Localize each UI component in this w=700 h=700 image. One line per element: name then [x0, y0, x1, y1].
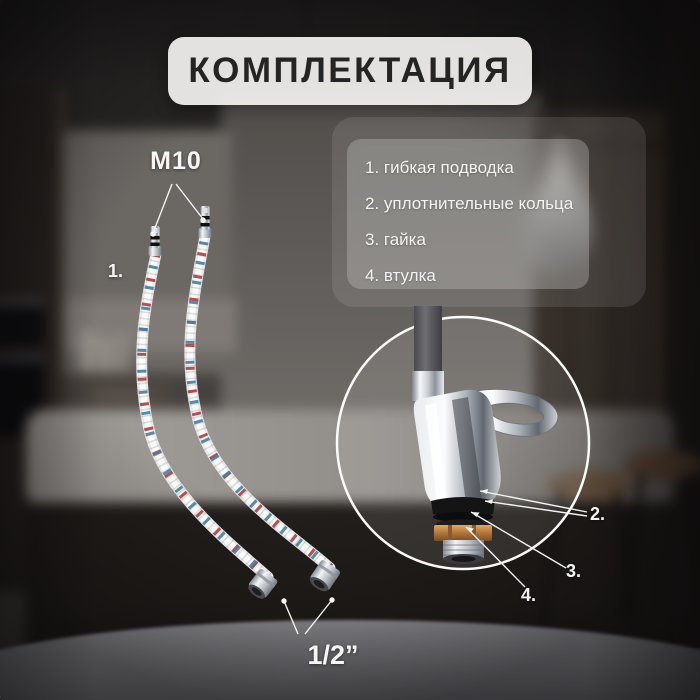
o-ring — [201, 223, 210, 227]
illustration-overlay — [0, 0, 700, 700]
brass-nut — [434, 525, 492, 541]
red-tracer — [142, 254, 268, 577]
label-m10-thread: M10 — [136, 147, 216, 176]
callout-2-label: 2. — [590, 504, 605, 525]
hose-left — [142, 254, 268, 577]
callout-4-label: 4. — [521, 585, 536, 606]
nut-facet — [448, 525, 452, 541]
flexible-hoses — [142, 206, 342, 602]
blue-tracer — [142, 254, 268, 577]
o-ring — [151, 243, 160, 247]
hose-fitting-m10-left — [149, 226, 162, 256]
label-half-inch-thread: 1/2” — [283, 640, 383, 671]
hose-fitting-m10-right — [199, 206, 212, 238]
o-ring — [151, 236, 160, 240]
bushing-bore — [452, 556, 476, 562]
pointer-half-inch — [281, 597, 334, 634]
hose-nut-half-left — [245, 568, 278, 602]
label-item-1: 1. — [108, 261, 123, 282]
callout-3-label: 3. — [566, 561, 581, 582]
hose-nut-half-right — [307, 559, 341, 594]
product-infographic: 1. гибкая подводка 2. уплотнительные кол… — [0, 0, 700, 700]
faucet-riser-pipe — [414, 306, 442, 374]
